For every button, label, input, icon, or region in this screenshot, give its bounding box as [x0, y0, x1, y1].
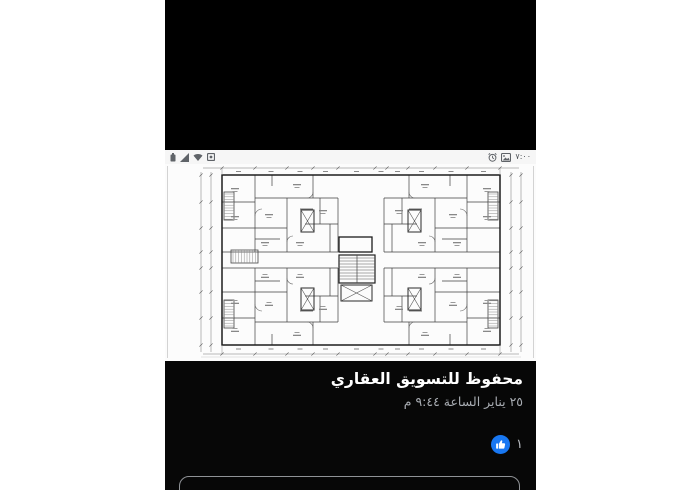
battery-icon	[170, 153, 176, 162]
gallery-icon	[501, 153, 511, 162]
like-icon	[491, 435, 510, 454]
floor-plan-image[interactable]	[165, 164, 536, 361]
page-name-link[interactable]: محفوظ للتسويق العقاري	[331, 370, 523, 388]
status-left-icons	[170, 153, 215, 162]
facebook-post-card: ٧:٠٠ محفوظ للتسويق العقاري ٢٥ يناير السا…	[165, 0, 536, 490]
alarm-icon	[488, 153, 497, 162]
status-right-icons: ٧:٠٠	[488, 153, 531, 162]
page: ٧:٠٠ محفوظ للتسويق العقاري ٢٥ يناير السا…	[0, 0, 700, 490]
like-row[interactable]: ١	[491, 435, 523, 454]
post-timestamp[interactable]: ٢٥ يناير الساعة ٩:٤٤ م	[404, 394, 523, 409]
signal-icon	[180, 153, 189, 162]
phone-status-bar: ٧:٠٠	[165, 150, 536, 164]
photo-letterbox	[165, 0, 536, 150]
wifi-icon	[193, 153, 203, 161]
screenshot-icon	[207, 153, 215, 161]
status-time: ٧:٠٠	[515, 153, 531, 161]
post-caption: محفوظ للتسويق العقاري ٢٥ يناير الساعة ٩:…	[165, 361, 536, 490]
like-count: ١	[516, 437, 523, 452]
floor-plan-svg	[165, 164, 536, 361]
cta-button[interactable]: عرض المزيد على فيسبوك	[179, 476, 520, 490]
